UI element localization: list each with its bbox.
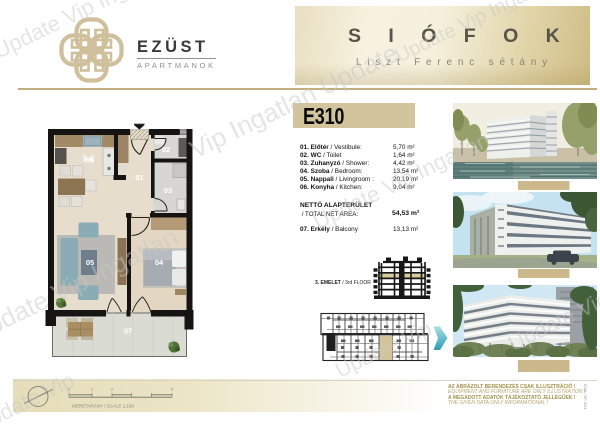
svg-text:0: 0 (68, 387, 71, 392)
svg-text:04: 04 (155, 258, 164, 267)
svg-text:5: 5 (171, 387, 174, 392)
svg-text:07: 07 (124, 327, 132, 336)
svg-text:05: 05 (86, 258, 94, 267)
svg-text:MÉRETARÁNY / SCALE 1:100: MÉRETARÁNY / SCALE 1:100 (72, 403, 134, 409)
svg-text:01: 01 (135, 173, 143, 182)
svg-text:03: 03 (164, 186, 172, 195)
svg-text:06: 06 (86, 156, 94, 165)
svg-text:1: 1 (91, 387, 94, 392)
svg-text:02: 02 (162, 145, 170, 154)
svg-text:2: 2 (111, 387, 114, 392)
